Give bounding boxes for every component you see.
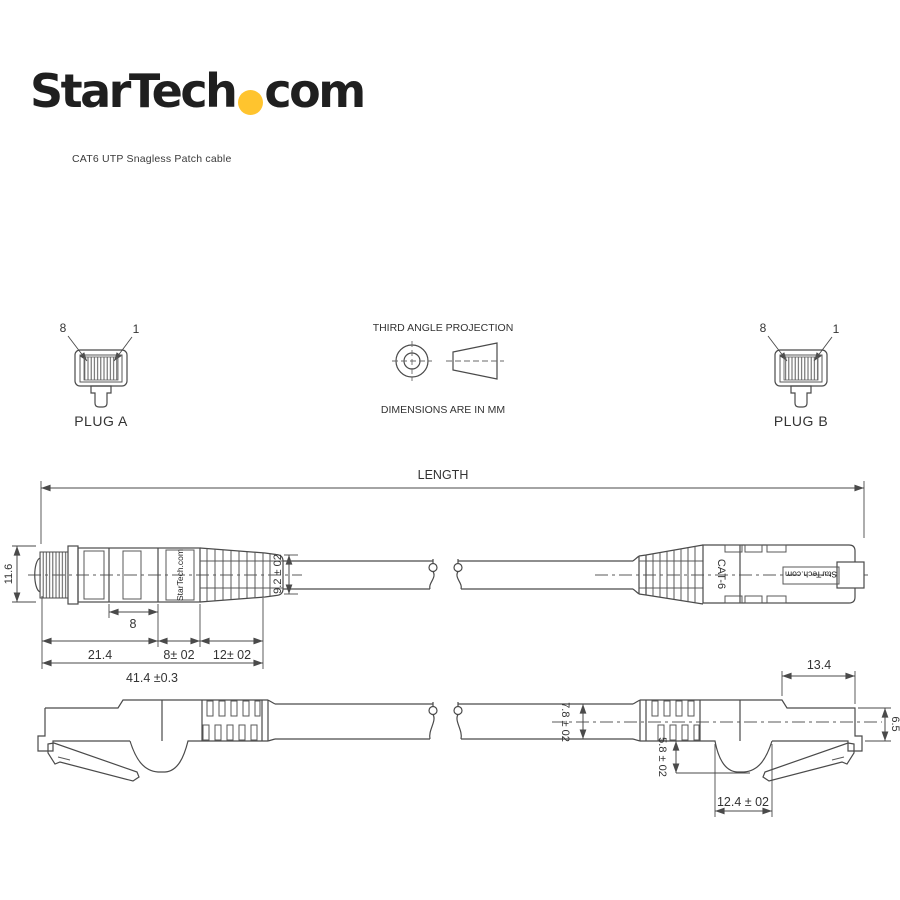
dim-9-2: 9.2 ± 02 (272, 554, 284, 594)
dim-21-4: 21.4 (88, 648, 112, 662)
cable-run-top (283, 559, 633, 589)
body-and-tip-right (700, 700, 862, 751)
plug-b-pin1-label: 1 (833, 322, 840, 336)
plug-tip-square (837, 562, 864, 588)
dim-12-4: 12.4 ± 02 (717, 795, 769, 809)
snagless-bump-right (700, 741, 772, 772)
dim-8: 8 (130, 617, 137, 631)
projection-title: THIRD ANGLE PROJECTION (373, 322, 514, 334)
plug-a-label: PLUG A (74, 413, 128, 429)
technical-drawing: 8 1 PLUG A THIRD ANGLE PROJECTION DIMENS… (0, 0, 900, 900)
break-left-tail (430, 572, 434, 590)
body-top-edge (45, 700, 202, 708)
third-angle-projection-block: THIRD ANGLE PROJECTION DIMENSIONS ARE IN… (373, 322, 514, 416)
plug-b-contacts (784, 357, 818, 380)
plug-a-pin8-label: 8 (60, 321, 67, 335)
plug-front-and-tip (38, 708, 130, 751)
latch-lever-right (763, 743, 854, 781)
length-dimension: LENGTH (41, 468, 864, 544)
plug-a-pin1-label: 1 (133, 322, 140, 336)
latch-hook (58, 757, 70, 760)
dim-12-02: 12± 02 (213, 648, 251, 662)
dim-5-8: 5.8 ± 02 (656, 737, 668, 777)
boot-entry-wedge (633, 700, 640, 741)
plug-b-pin8-label: 8 (760, 321, 767, 335)
dim-7-8: 7.8 ± 02 (559, 702, 571, 742)
dim-41-4: 41.4 ±0.3 (126, 671, 178, 685)
plug-a-front-view: 8 1 PLUG A (60, 321, 140, 429)
plug-b-front-view: 8 1 PLUG B (760, 321, 840, 429)
cable-top-view: StarTech.com (3, 545, 868, 685)
dim-11-6: 11.6 (3, 564, 15, 585)
break-right-loop (454, 564, 462, 572)
body-notches (725, 545, 786, 603)
plug-b-latch-tab (791, 386, 811, 407)
length-label: LENGTH (418, 468, 469, 482)
plug-a-contacts (84, 357, 118, 380)
dim-13-4: 13.4 (807, 658, 831, 672)
break-right-tail (457, 572, 461, 590)
boot-ribs-right (653, 546, 695, 602)
boot-ribs (207, 549, 270, 602)
plug-contact-comb (40, 552, 68, 598)
boot-side-outline (202, 700, 268, 741)
dim-6-5: 6.5 (889, 716, 900, 731)
latch-hook-right (832, 757, 844, 760)
break-left-loop (429, 564, 437, 572)
boot-slots-left (203, 701, 260, 740)
latch-lever (48, 743, 139, 781)
boot-exit-wedge (268, 700, 275, 741)
snagless-bump (130, 741, 202, 772)
dim-8-02: 8± 02 (163, 648, 194, 662)
boot-slots-right (652, 701, 699, 740)
brand-text-right: StarTech.com (785, 570, 837, 580)
dimensions-note: DIMENSIONS ARE IN MM (381, 404, 505, 416)
side-view-left-connector (38, 700, 275, 781)
plug-b-label: PLUG B (774, 413, 828, 429)
plug-a-latch-tab (91, 386, 111, 407)
cat6-marking: CAT-6 (715, 559, 727, 589)
side-view-dimensions: 7.8 ± 02 13.4 6.5 5.8 ± 02 12.4 ± 02 (559, 658, 900, 817)
cable-run-side (275, 702, 633, 739)
brand-text-left: StarTech.com (175, 549, 185, 601)
